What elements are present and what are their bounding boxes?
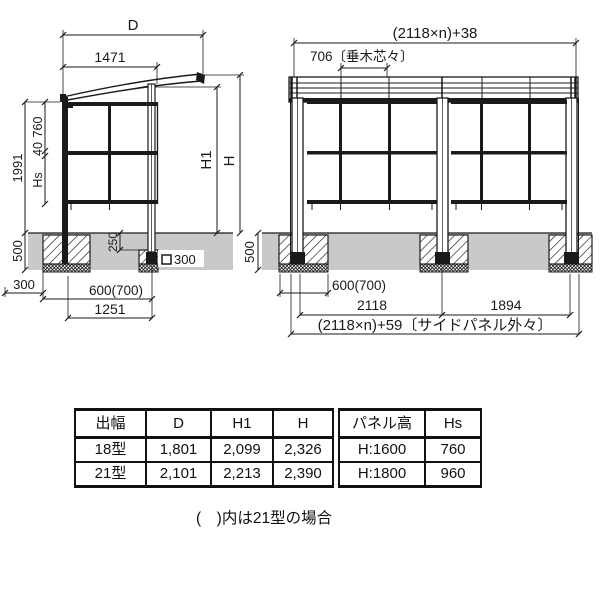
dim-total-top-label: (2118×n)+38 — [393, 25, 478, 42]
spec-cell: 2,099 — [211, 438, 273, 463]
dim-1251-label: 1251 — [94, 301, 125, 317]
dim-500-side-label: 500 — [10, 240, 25, 262]
dim-2118-label: 2118 — [357, 297, 387, 313]
drawing-page: D 1471 1991 760 40 Hs H1 H 500 250 300 3… — [0, 0, 600, 600]
spec-cell: 18型 — [75, 438, 146, 463]
front-post-base — [146, 252, 157, 264]
dim-h-label: H — [221, 156, 238, 167]
panel-cell: H:1600 — [339, 438, 425, 463]
dim-40-label: 40 — [31, 142, 45, 156]
panel-bay-1 — [307, 100, 437, 210]
front-gravel — [139, 264, 158, 272]
spec-header-h: H — [273, 410, 333, 438]
spec-row-21: 21型 2,101 2,213 2,390 — [75, 462, 333, 487]
spec-table: 出幅 D H1 H 18型 1,801 2,099 2,326 21型 2,10… — [74, 408, 334, 488]
dim-250-label: 250 — [106, 232, 120, 252]
dim-1991-label: 1991 — [10, 154, 25, 183]
front-view-diagram: (2118×n)+38 706〔垂木芯々〕 500 600(700) 2118 … — [242, 25, 592, 337]
side-panel — [62, 102, 158, 210]
panel-bay-2 — [451, 100, 567, 210]
dim-h1-label: H1 — [198, 150, 215, 169]
panel-height-table: パネル高 Hs H:1600 760 H:1800 960 — [338, 408, 482, 488]
dim-hs-label: Hs — [31, 172, 45, 187]
footnote: ( )内は21型の場合 — [196, 506, 332, 528]
roof-curve-upper — [63, 74, 201, 97]
panel-table-header-row: パネル高 Hs — [339, 410, 481, 438]
spec-table-header-row: 出幅 D H1 H — [75, 410, 333, 438]
dim-1894-label: 1894 — [490, 297, 521, 313]
left-gravel — [279, 264, 328, 272]
panel-row-1600: H:1600 760 — [339, 438, 481, 463]
dim-760-label: 760 — [31, 117, 45, 138]
spec-header-depth: 出幅 — [75, 410, 146, 438]
rear-gravel — [43, 264, 90, 272]
spec-cell: 2,101 — [146, 462, 211, 487]
dim-1471-label: 1471 — [94, 49, 125, 65]
dim-square-300-label: 300 — [174, 252, 196, 267]
dim-600-front-label: 600(700) — [332, 278, 386, 293]
panel-header-hs: Hs — [425, 410, 481, 438]
center-gravel — [420, 264, 468, 272]
spec-cell: 2,390 — [273, 462, 333, 487]
dim-500-front-label: 500 — [242, 241, 257, 263]
dim-300-label: 300 — [13, 277, 35, 292]
technical-drawing: D 1471 1991 760 40 Hs H1 H 500 250 300 3… — [0, 0, 600, 400]
spec-header-h1: H1 — [211, 410, 273, 438]
dim-d-label: D — [128, 17, 139, 34]
roof-front-cap — [196, 72, 205, 84]
spec-row-18: 18型 1,801 2,099 2,326 — [75, 438, 333, 463]
panel-cell: 960 — [425, 462, 481, 487]
dim-rafter-pitch-label: 706〔垂木芯々〕 — [310, 49, 414, 64]
roof-band — [289, 77, 578, 102]
right-gravel — [549, 264, 592, 272]
rear-post — [62, 97, 68, 264]
spec-header-d: D — [146, 410, 211, 438]
panel-row-1800: H:1800 960 — [339, 462, 481, 487]
panel-cell: 760 — [425, 438, 481, 463]
spec-cell: 21型 — [75, 462, 146, 487]
dim-600-side-label: 600(700) — [89, 283, 143, 298]
spec-cell: 2,326 — [273, 438, 333, 463]
spec-cell: 2,213 — [211, 462, 273, 487]
roof-curve-lower — [63, 81, 201, 101]
dim-total-bottom-label: (2118×n)+59〔サイドパネル外々〕 — [318, 317, 553, 334]
square-footing-icon — [162, 255, 171, 264]
panel-cell: H:1800 — [339, 462, 425, 487]
spec-cell: 1,801 — [146, 438, 211, 463]
side-view-diagram: D 1471 1991 760 40 Hs H1 H 500 250 300 3… — [2, 17, 244, 321]
panel-header-height: パネル高 — [339, 410, 425, 438]
